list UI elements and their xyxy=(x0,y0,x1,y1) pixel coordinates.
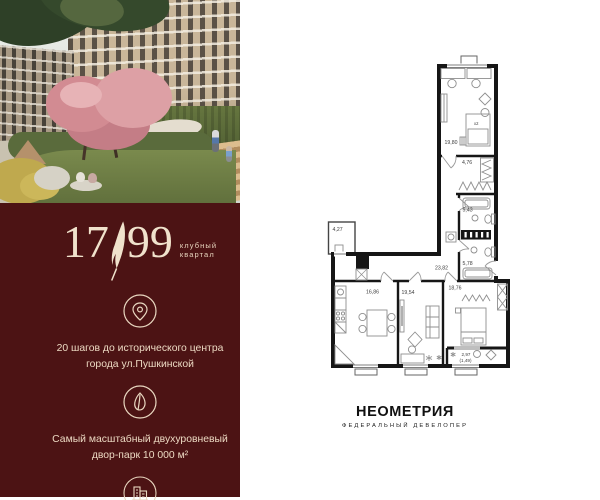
photo-blossom-highlight xyxy=(60,82,102,108)
windows xyxy=(334,64,499,369)
developer-subtitle: ФЕДЕРАЛЬНЫЙ ДЕВЕЛОПЕР xyxy=(330,423,480,429)
page: 17 99 клубный квартал xyxy=(0,0,600,500)
tagline-line-1: клубный xyxy=(180,241,217,250)
room-area-label: 5,43 xyxy=(463,208,473,214)
room-area-label: 23,82 xyxy=(435,266,448,272)
room-area-label: 18,76 xyxy=(449,286,462,292)
map-pin-icon xyxy=(122,293,158,334)
feature-commerce: Собственная коммерческая инфраструктура … xyxy=(44,464,236,500)
room-area-label: 19,80 xyxy=(445,140,458,146)
room-area-label: (1,49) xyxy=(460,358,472,363)
floor-plan: 19,80 4,76 5,43 4,27 23,82 5,78 16,86 19… xyxy=(325,48,520,380)
developer-name: НЕОМЕТРИЯ xyxy=(330,404,480,420)
photo-person-walking xyxy=(212,130,219,152)
brand-logo: 17 99 клубный квартал xyxy=(63,220,217,282)
feature-park: Самый масштабный двухуровневый двор-парк… xyxy=(44,373,236,464)
photo-person-sitting xyxy=(76,172,85,182)
bunk-bed-note: x2 xyxy=(474,121,479,126)
room-area-label: 16,86 xyxy=(366,290,379,296)
photo-blossom-tree xyxy=(94,68,172,128)
photo-white-bush xyxy=(34,166,70,190)
feature-location-text: 20 шагов до исторического центра города … xyxy=(44,341,236,373)
photo-person-sitting xyxy=(88,173,97,183)
hero-photo xyxy=(0,0,240,203)
photo-picnic-blanket xyxy=(70,180,102,191)
leaf-icon xyxy=(122,384,158,425)
tagline-line-2: квартал xyxy=(180,250,217,259)
brand-tagline: клубный квартал xyxy=(180,241,217,259)
feature-location: 20 шагов до исторического центра города … xyxy=(44,282,236,373)
developer-logo: НЕОМЕТРИЯ ФЕДЕРАЛЬНЫЙ ДЕВЕЛОПЕР xyxy=(330,404,480,429)
buildings-icon xyxy=(122,475,158,500)
room-area-label: 2,97 xyxy=(462,352,471,357)
room-area-label: 19,54 xyxy=(402,290,415,296)
feature-park-text: Самый масштабный двухуровневый двор-парк… xyxy=(44,432,236,464)
room-area-label: 5,78 xyxy=(463,261,473,267)
photo-child-walking xyxy=(226,146,232,162)
room-area-label: 4,27 xyxy=(333,227,343,233)
logo-number-99: 99 xyxy=(127,220,173,264)
logo-number-17: 17 xyxy=(63,220,109,264)
brand-panel: 17 99 клубный квартал xyxy=(0,203,240,497)
furniture xyxy=(335,69,508,365)
room-area-label: 4,76 xyxy=(462,160,472,166)
feather-icon xyxy=(108,220,128,287)
